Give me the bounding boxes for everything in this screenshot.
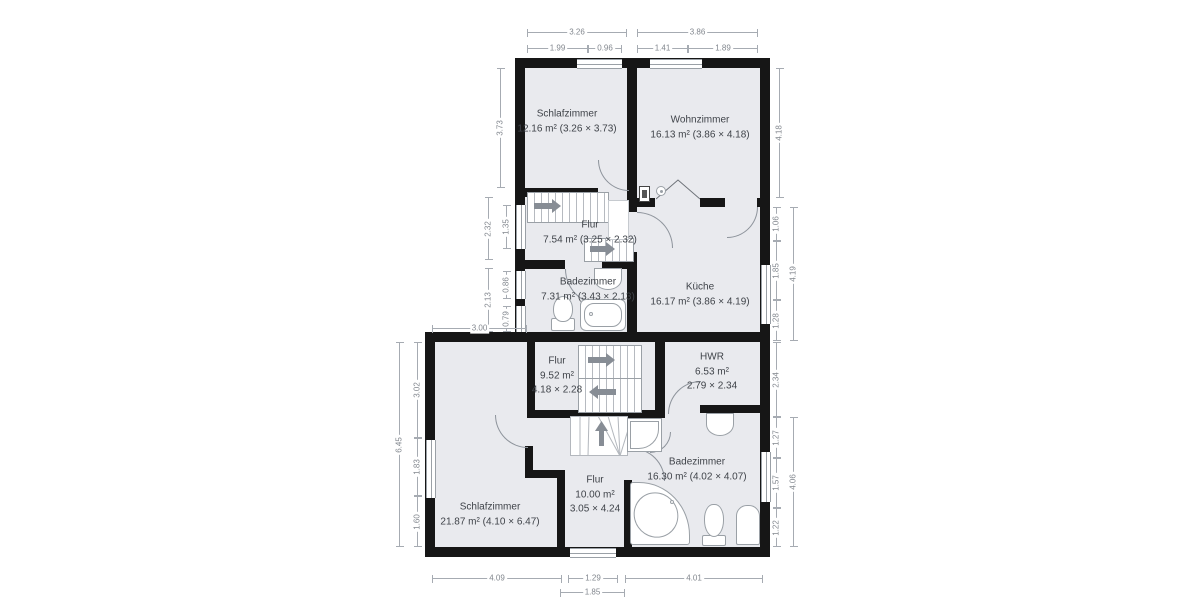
wall bbox=[557, 478, 565, 547]
room-label-schlafzimmer-upper: Schlafzimmer 12.16 m² (3.26 × 3.73) bbox=[517, 108, 616, 137]
dimension: 1.83 bbox=[417, 438, 418, 496]
room-name: Wohnzimmer bbox=[650, 114, 749, 129]
dimension: 6.45 bbox=[399, 342, 400, 547]
room-size: 2.79 × 2.34 bbox=[687, 379, 737, 394]
room-size: 12.16 m² (3.26 × 3.73) bbox=[517, 122, 616, 137]
dimension: 2.13 bbox=[488, 268, 489, 332]
wall bbox=[425, 332, 770, 342]
wall bbox=[515, 260, 565, 269]
dimension: 1.35 bbox=[506, 205, 507, 249]
window bbox=[426, 440, 436, 498]
room-name: Badezimmer bbox=[541, 276, 635, 291]
bathtub-drain-icon bbox=[589, 312, 593, 316]
room-label-kueche: Küche 16.17 m² (3.86 × 4.19) bbox=[650, 281, 749, 310]
dimension: 2.32 bbox=[488, 197, 489, 260]
room-area: 9.52 m² bbox=[532, 369, 582, 384]
staircase-winder bbox=[570, 416, 628, 456]
sink-icon bbox=[706, 413, 734, 436]
bathtub-drain-icon bbox=[670, 500, 674, 504]
room-name: Küche bbox=[650, 281, 749, 296]
room-label-schlafzimmer-lower: Schlafzimmer 21.87 m² (4.10 × 6.47) bbox=[440, 501, 539, 530]
dimension: 4.19 bbox=[793, 207, 794, 341]
toilet-icon bbox=[704, 504, 724, 537]
dimension: 1.28 bbox=[776, 300, 777, 341]
window bbox=[570, 548, 616, 558]
dimension: 1.57 bbox=[776, 458, 777, 508]
stair-direction-arrow-icon bbox=[598, 389, 616, 395]
room-name: Flur bbox=[532, 354, 582, 369]
stair-direction-arrow-icon bbox=[588, 357, 606, 363]
window bbox=[761, 265, 771, 324]
dimension: 1.85 bbox=[776, 241, 777, 300]
dimension: 1.41 bbox=[637, 48, 688, 49]
smoke-detector-icon bbox=[660, 190, 663, 193]
wall bbox=[525, 470, 565, 478]
wall bbox=[757, 198, 770, 207]
room-label-badezimmer-lower: Badezimmer 16.30 m² (4.02 × 4.07) bbox=[647, 456, 746, 485]
dimension: 1.27 bbox=[776, 417, 777, 458]
dimension: 1.29 bbox=[568, 578, 618, 579]
stair-direction-arrow-icon bbox=[534, 203, 552, 209]
room-size: 7.31 m² (3.43 × 2.13) bbox=[541, 290, 635, 305]
room-label-badezimmer-upper: Badezimmer 7.31 m² (3.43 × 2.13) bbox=[541, 276, 635, 305]
wall bbox=[700, 198, 725, 207]
dimension: 1.06 bbox=[776, 207, 777, 241]
dimension: 1.60 bbox=[417, 496, 418, 547]
wall bbox=[515, 58, 770, 68]
dimension: 0.86 bbox=[506, 271, 507, 299]
window bbox=[577, 59, 622, 69]
dimension: 1.89 bbox=[688, 48, 758, 49]
dimension: 2.34 bbox=[776, 342, 777, 417]
room-name: HWR bbox=[687, 350, 737, 365]
room-label-wohnzimmer: Wohnzimmer 16.13 m² (3.86 × 4.18) bbox=[650, 114, 749, 143]
window bbox=[516, 205, 526, 249]
dimension: 4.18 bbox=[779, 68, 780, 198]
dimension: 4.01 bbox=[625, 578, 763, 579]
dimension: 3.26 bbox=[527, 32, 627, 33]
dimension: 0.96 bbox=[588, 48, 622, 49]
window bbox=[761, 452, 771, 502]
dimension: 1.99 bbox=[527, 48, 588, 49]
room-label-flur-lower: Flur 10.00 m² 3.05 × 4.24 bbox=[570, 473, 620, 517]
dimension: 1.22 bbox=[776, 508, 777, 547]
wall bbox=[515, 58, 525, 342]
room-size: 7.54 m² (3.25 × 2.32) bbox=[543, 233, 637, 248]
room-name: Badezimmer bbox=[647, 456, 746, 471]
floor-plan-canvas: Schlafzimmer 12.16 m² (3.26 × 3.73) Wohn… bbox=[0, 0, 1200, 600]
staircase-lower-flight bbox=[578, 378, 642, 413]
room-label-flur-mid: Flur 9.52 m² 4.18 × 2.28 bbox=[532, 354, 582, 398]
dimension: 3.86 bbox=[637, 32, 758, 33]
room-size: 3.05 × 4.24 bbox=[570, 502, 620, 517]
wall bbox=[700, 405, 760, 413]
room-name: Schlafzimmer bbox=[517, 108, 616, 123]
room-area: 10.00 m² bbox=[570, 488, 620, 503]
dimension: 4.09 bbox=[432, 578, 562, 579]
room-size: 16.13 m² (3.86 × 4.18) bbox=[650, 128, 749, 143]
wall bbox=[655, 332, 665, 412]
dimension: 3.73 bbox=[500, 68, 501, 188]
room-name: Flur bbox=[570, 473, 620, 488]
dimension: 1.85 bbox=[560, 592, 625, 593]
room-size: 16.17 m² (3.86 × 4.19) bbox=[650, 295, 749, 310]
room-area: 6.53 m² bbox=[687, 365, 737, 380]
window bbox=[516, 271, 526, 299]
room-label-flur-upper: Flur 7.54 m² (3.25 × 2.32) bbox=[543, 219, 637, 248]
window bbox=[650, 59, 702, 69]
dimension: 4.06 bbox=[793, 417, 794, 547]
dimension: 3.02 bbox=[417, 342, 418, 438]
boiler-icon bbox=[736, 505, 760, 545]
room-size: 16.30 m² (4.02 × 4.07) bbox=[647, 470, 746, 485]
electrical-panel-icon bbox=[642, 190, 647, 198]
room-name: Flur bbox=[543, 219, 637, 234]
room-size: 4.18 × 2.28 bbox=[532, 383, 582, 398]
room-name: Schlafzimmer bbox=[440, 501, 539, 516]
room-size: 21.87 m² (4.10 × 6.47) bbox=[440, 515, 539, 530]
dimension: 3.00 bbox=[432, 328, 527, 329]
room-label-hwr: HWR 6.53 m² 2.79 × 2.34 bbox=[687, 350, 737, 394]
